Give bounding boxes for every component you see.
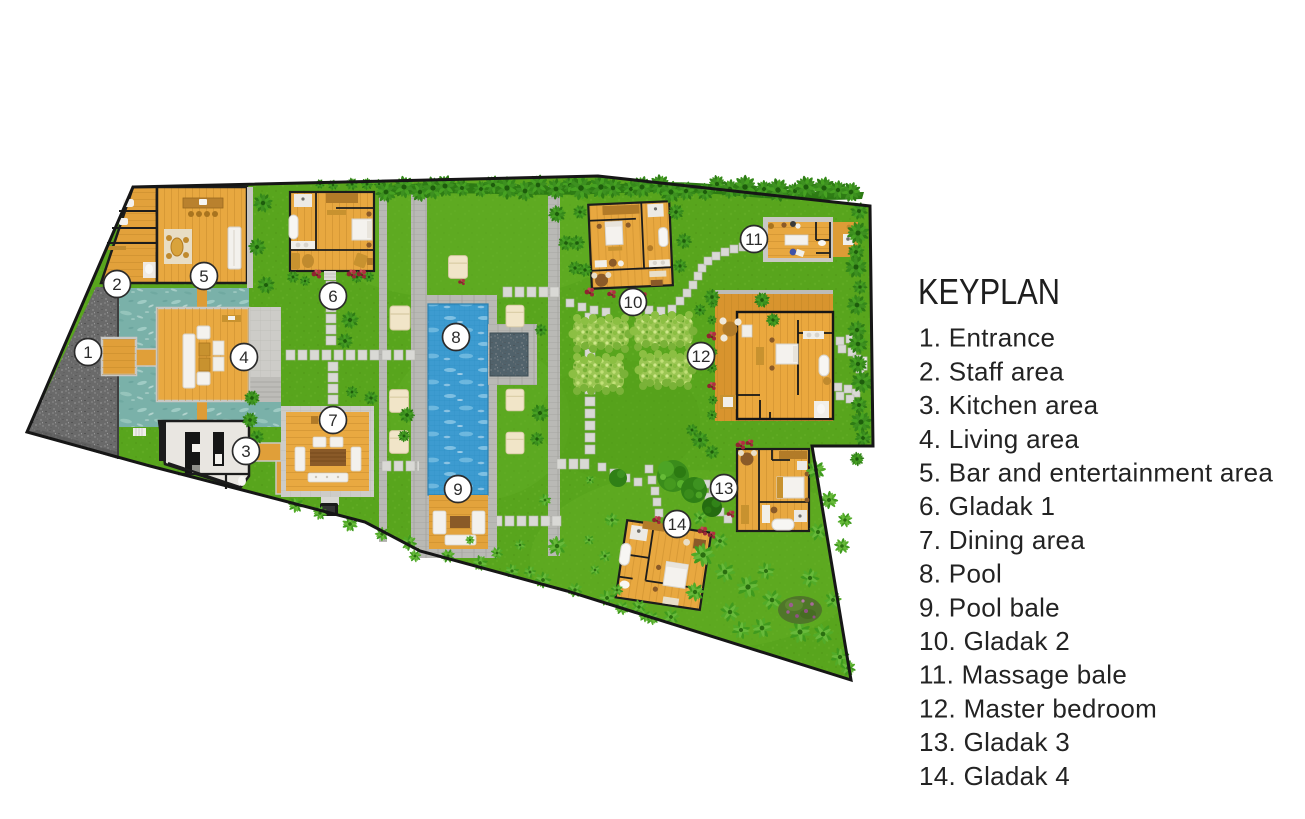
svg-text:5. Bar and entertainment area: 5. Bar and entertainment area — [919, 458, 1273, 488]
svg-text:10: 10 — [624, 293, 643, 312]
svg-text:3. Kitchen area: 3. Kitchen area — [919, 390, 1099, 420]
svg-text:11. Massage bale: 11. Massage bale — [919, 660, 1127, 690]
svg-text:5: 5 — [199, 267, 208, 286]
svg-text:14: 14 — [668, 515, 687, 534]
svg-text:7. Dining area: 7. Dining area — [919, 525, 1085, 555]
svg-text:12: 12 — [692, 347, 711, 366]
svg-text:2: 2 — [112, 275, 121, 294]
svg-text:13: 13 — [715, 479, 734, 498]
svg-text:1: 1 — [83, 343, 92, 362]
svg-text:7: 7 — [328, 411, 337, 430]
svg-text:12. Master bedroom: 12. Master bedroom — [919, 693, 1157, 723]
svg-text:6. Gladak 1: 6. Gladak 1 — [919, 491, 1055, 521]
svg-text:1. Entrance: 1. Entrance — [919, 323, 1055, 353]
svg-text:6: 6 — [328, 287, 337, 306]
svg-text:14. Gladak 4: 14. Gladak 4 — [919, 761, 1070, 791]
svg-text:4: 4 — [239, 348, 248, 367]
svg-text:3: 3 — [241, 442, 250, 461]
svg-text:KEYPLAN: KEYPLAN — [918, 271, 1060, 312]
svg-text:10. Gladak 2: 10. Gladak 2 — [919, 626, 1070, 656]
svg-text:11: 11 — [745, 230, 763, 249]
svg-text:4. Living area: 4. Living area — [919, 424, 1080, 454]
svg-text:9: 9 — [453, 480, 462, 499]
svg-text:9. Pool bale: 9. Pool bale — [919, 592, 1060, 622]
svg-text:2. Staff area: 2. Staff area — [919, 356, 1064, 386]
svg-text:8. Pool: 8. Pool — [919, 559, 1002, 589]
svg-text:8: 8 — [451, 328, 460, 347]
svg-text:13. Gladak 3: 13. Gladak 3 — [919, 727, 1070, 757]
